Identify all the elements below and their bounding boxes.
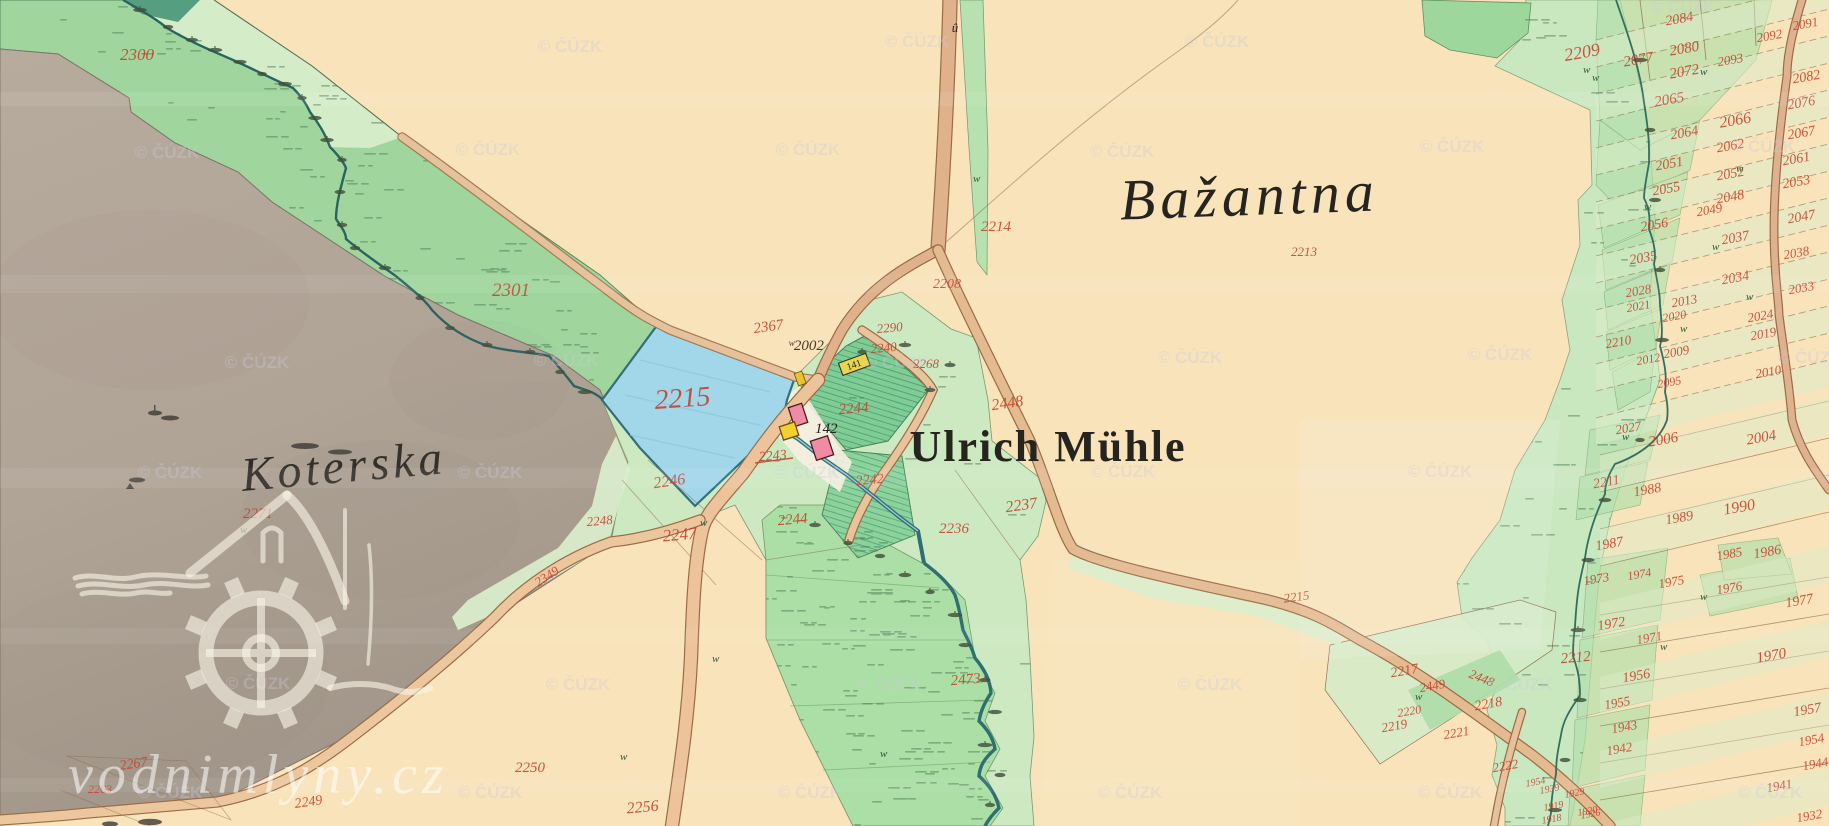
svg-text:2213: 2213 [1291,244,1318,259]
svg-text:© ČÚZK: © ČÚZK [138,463,203,482]
svg-text:© ČÚZK: © ČÚZK [458,463,523,482]
svg-text:© ČÚZK: © ČÚZK [1778,348,1829,367]
svg-text:© ČÚZK: © ČÚZK [1651,0,1716,16]
svg-text:© ČÚZK: © ČÚZK [1468,345,1533,364]
svg-text:w: w [1415,691,1423,703]
svg-text:2244: 2244 [838,400,870,419]
svg-text:w: w [1622,431,1630,443]
svg-text:© ČÚZK: © ČÚZK [776,140,841,159]
svg-text:© ČÚZK: © ČÚZK [538,37,603,56]
svg-text:2300: 2300 [120,45,155,64]
svg-text:w: w [1592,72,1600,84]
svg-text:© ČÚZK: © ČÚZK [1158,348,1223,367]
svg-text:û: û [952,20,959,35]
svg-text:w: w [973,173,981,185]
svg-text:© ČÚZK: © ČÚZK [1098,783,1163,802]
svg-text:2215: 2215 [653,381,711,416]
svg-text:© ČÚZK: © ČÚZK [1178,675,1243,694]
svg-text:© ČÚZK: © ČÚZK [1408,462,1473,481]
svg-text:2256: 2256 [626,798,659,818]
svg-text:© ČÚZK: © ČÚZK [225,353,290,372]
svg-text:w: w [1583,64,1591,76]
svg-text:w: w [712,653,720,665]
svg-text:w: w [1736,163,1744,175]
svg-text:w: w [620,751,628,763]
svg-text:2244: 2244 [777,511,809,530]
svg-text:w: w [1700,66,1708,78]
svg-text:w: w [1680,323,1688,335]
svg-text:2248: 2248 [586,512,614,529]
svg-text:w: w [1644,201,1652,213]
svg-text:© ČÚZK: © ČÚZK [1488,675,1553,694]
svg-text:© ČÚZK: © ČÚZK [865,353,930,372]
svg-text:© ČÚZK: © ČÚZK [1420,137,1485,156]
svg-text:© ČÚZK: © ČÚZK [1418,783,1483,802]
svg-text:2473: 2473 [950,671,981,690]
svg-text:ʷ2002: ʷ2002 [788,338,824,354]
svg-text:© ČÚZK: © ČÚZK [1731,137,1796,156]
svg-text:© ČÚZK: © ČÚZK [458,783,523,802]
svg-text:© ČÚZK: © ČÚZK [1090,142,1155,161]
svg-text:w: w [880,748,888,760]
svg-text:2214: 2214 [981,219,1012,235]
svg-text:© ČÚZK: © ČÚZK [135,143,200,162]
svg-text:© ČÚZK: © ČÚZK [885,32,950,51]
svg-text:2247: 2247 [662,523,699,545]
svg-text:© ČÚZK: © ČÚZK [1738,783,1803,802]
svg-text:© ČÚZK: © ČÚZK [456,140,521,159]
svg-text:142: 142 [815,421,838,437]
svg-text:w: w [1712,241,1720,253]
svg-text:Bažantna: Bažantna [1119,159,1380,233]
svg-text:vodnimlyny.cz: vodnimlyny.cz [68,744,449,806]
svg-text:© ČÚZK: © ČÚZK [858,675,923,694]
svg-text:© ČÚZK: © ČÚZK [1185,32,1250,51]
svg-text:2250: 2250 [515,760,546,776]
svg-text:2236: 2236 [939,521,970,537]
svg-text:w: w [700,517,708,529]
svg-text:© ČÚZK: © ČÚZK [1091,462,1156,481]
svg-text:© ČÚZK: © ČÚZK [546,675,611,694]
svg-text:w: w [1700,591,1708,603]
svg-text:© ČÚZK: © ČÚZK [534,351,599,370]
svg-text:2290: 2290 [876,319,904,336]
svg-text:© ČÚZK: © ČÚZK [778,783,843,802]
svg-text:© ČÚZK: © ČÚZK [775,463,840,482]
svg-text:2212: 2212 [1560,649,1592,668]
